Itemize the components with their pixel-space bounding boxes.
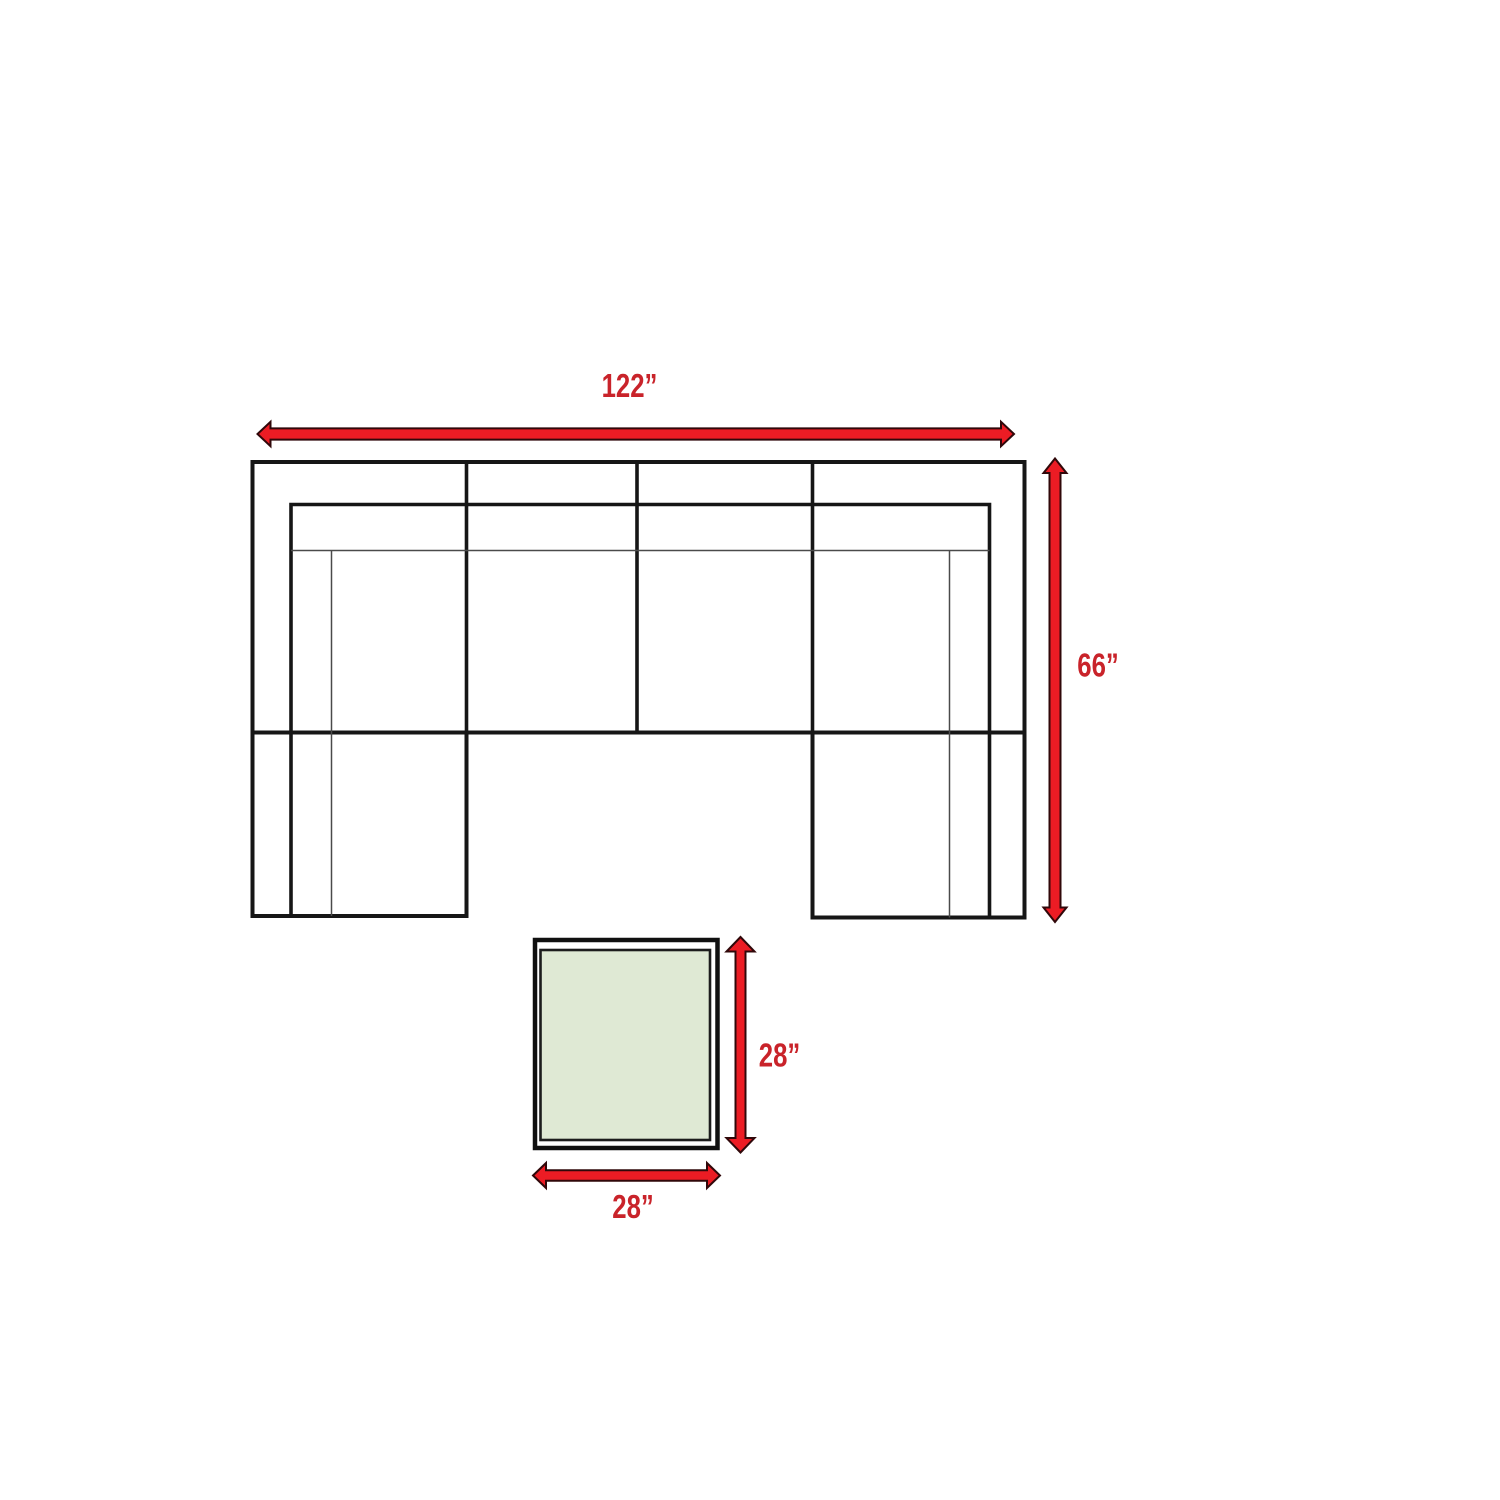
svg-text:66”: 66” — [1077, 648, 1118, 685]
svg-text:122”: 122” — [602, 368, 658, 405]
svg-text:28”: 28” — [759, 1038, 800, 1075]
svg-text:28”: 28” — [612, 1189, 653, 1226]
